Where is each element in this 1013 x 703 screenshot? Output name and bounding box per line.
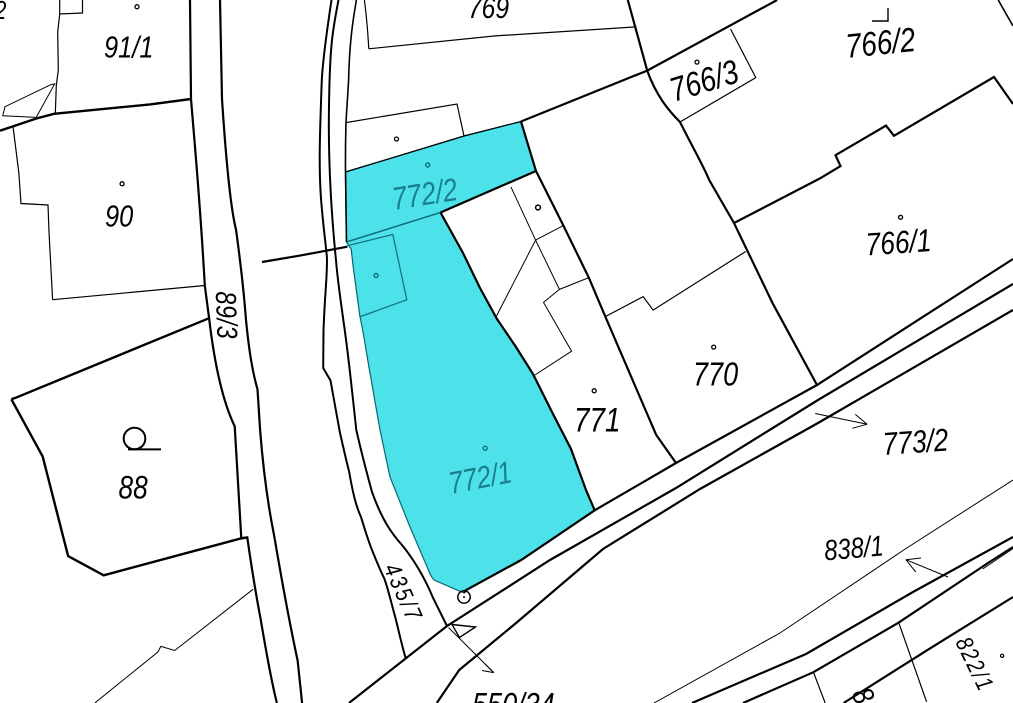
svg-text:770: 770 <box>693 357 738 393</box>
svg-text:2: 2 <box>0 0 6 26</box>
svg-text:769: 769 <box>468 0 509 25</box>
svg-text:771: 771 <box>574 401 621 439</box>
svg-text:90: 90 <box>105 199 133 234</box>
svg-text:766/1: 766/1 <box>865 224 933 263</box>
svg-text:88: 88 <box>119 471 149 506</box>
svg-text:766/2: 766/2 <box>844 20 917 65</box>
svg-text:838/1: 838/1 <box>823 529 885 567</box>
svg-text:773/2: 773/2 <box>882 423 950 462</box>
svg-text:91/1: 91/1 <box>104 30 153 65</box>
svg-text:550/34: 550/34 <box>472 688 555 703</box>
svg-text:89/3: 89/3 <box>209 291 243 340</box>
